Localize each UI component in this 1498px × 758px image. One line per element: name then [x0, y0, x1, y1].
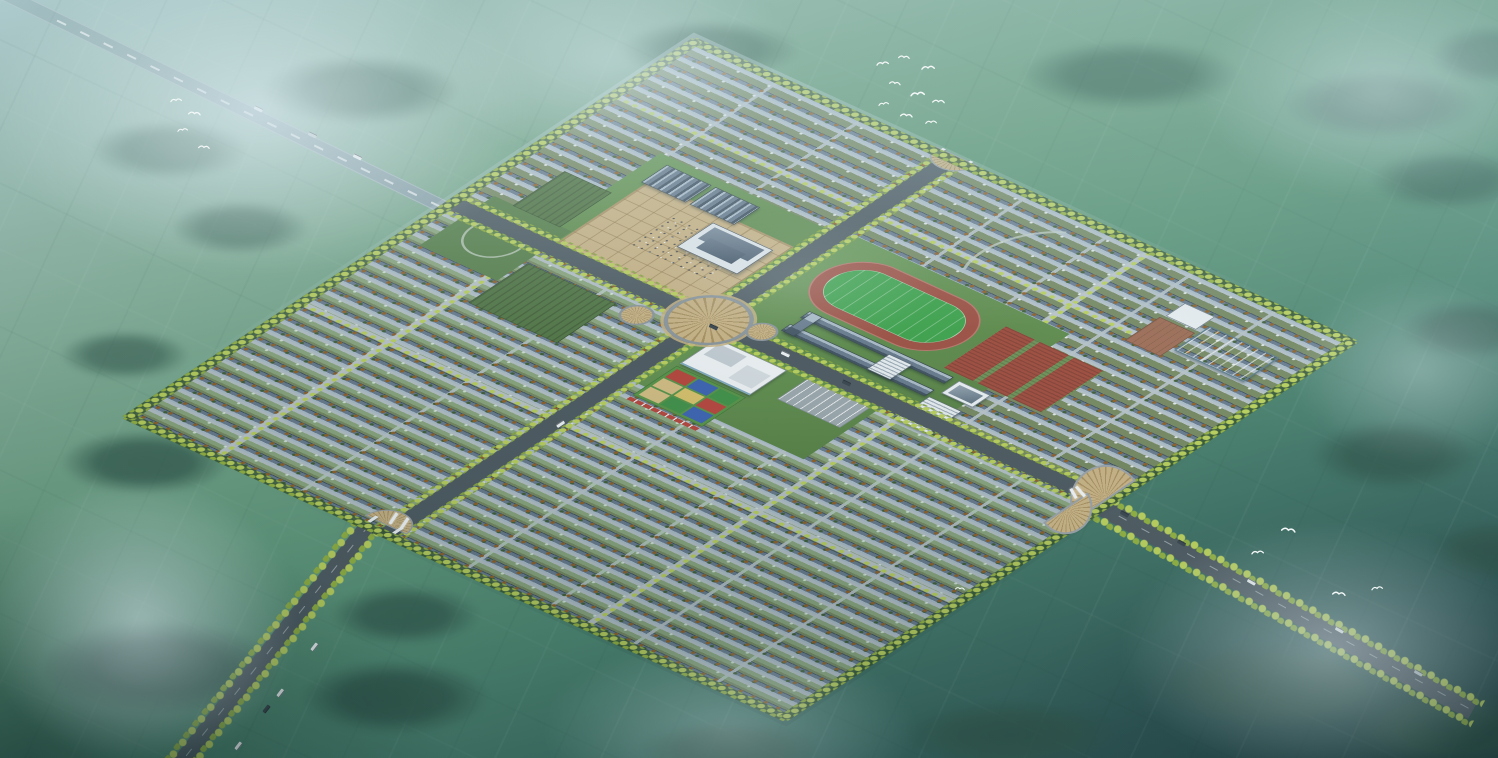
bird-icon	[188, 109, 201, 116]
bird-icon	[1281, 525, 1297, 534]
bird-icon	[1251, 548, 1264, 555]
bird-icon	[898, 54, 910, 60]
bird-icon	[921, 64, 935, 71]
birds-layer	[0, 0, 1498, 758]
bird-icon	[170, 96, 182, 103]
bird-icon	[955, 586, 965, 591]
bird-icon	[177, 126, 189, 132]
bird-icon	[876, 59, 890, 67]
aerial-rendering-scene	[0, 0, 1498, 758]
bird-icon	[910, 89, 926, 97]
bird-icon	[1332, 589, 1347, 597]
bird-icon	[889, 79, 902, 86]
bird-icon	[198, 144, 210, 150]
bird-icon	[878, 100, 890, 107]
bird-icon	[900, 111, 914, 118]
bird-icon	[932, 98, 945, 105]
bird-icon	[925, 119, 937, 125]
bird-icon	[1371, 584, 1384, 591]
